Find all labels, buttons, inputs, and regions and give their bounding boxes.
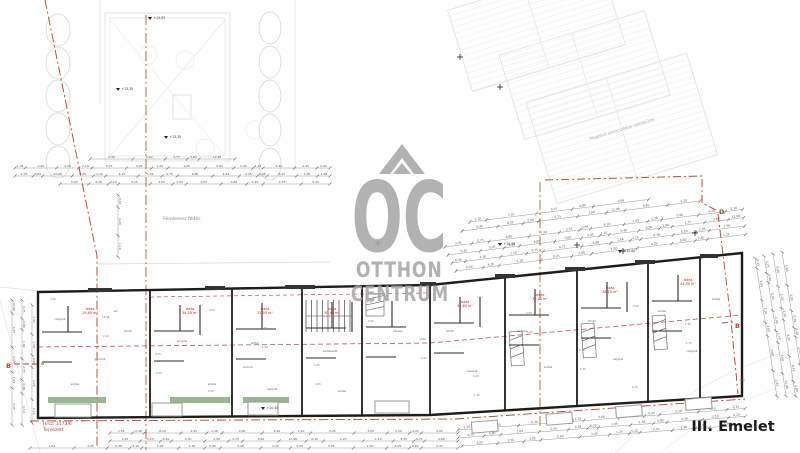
dimension-number: 1,10	[118, 243, 122, 250]
dimension-number: 4,05	[651, 241, 658, 246]
elevation-value: +10,45	[267, 406, 279, 410]
dimension-number: 3,35	[508, 212, 515, 217]
dimension-number: 6,10	[681, 229, 688, 234]
interior-dimension: 0,30	[580, 367, 586, 371]
dimension-number: 1,50	[395, 429, 402, 433]
dimension-number: 0,45	[118, 198, 122, 205]
architectural-floorplan-screenshot: Meglévő szomszédos lakóépület 1,380,904,…	[0, 0, 800, 453]
dimension-number: 1,10	[12, 377, 16, 384]
balcony-slab	[152, 403, 182, 416]
interior-dimension: 2,90	[633, 304, 639, 308]
dimension-number: 2,90	[527, 218, 534, 223]
dimension-number: 1,75	[574, 417, 581, 421]
interior-dimension: 3,05	[209, 308, 215, 312]
garden-vegetation	[46, 12, 281, 180]
dimension-number: 0,30	[302, 164, 309, 168]
dimension-number: 1,95	[632, 218, 639, 223]
dimension-number: 2,20	[12, 356, 16, 363]
dimension-number: 2,90	[213, 437, 220, 441]
dimension-number: 3,35	[732, 405, 739, 409]
dimension-number: 1,10	[510, 251, 517, 256]
dimension-number: 0,60	[216, 164, 223, 168]
dimension-number: 0,60	[412, 444, 419, 448]
dimension-number: 1,64	[617, 198, 624, 203]
dimension-number: 2,90	[662, 223, 669, 228]
dimension-number: 0,60	[436, 429, 443, 433]
property-boundary-left	[45, 0, 97, 447]
dimension-number: 1,25	[616, 430, 623, 434]
red-axis-through-building	[38, 315, 742, 347]
elevation-value: +13,35	[170, 135, 182, 139]
dimension-number: 12,98	[12, 302, 16, 311]
dimension-number: 2,45	[252, 180, 259, 184]
dimension-number: 1,64	[22, 341, 26, 348]
unit-area-label: 38,15 m²	[602, 290, 618, 294]
interior-dimension: 1,64	[473, 374, 479, 378]
dimension-number: 1,75	[21, 172, 28, 176]
dimension-number: 3,05	[328, 444, 335, 448]
interior-dimension: 3,35	[314, 363, 320, 367]
watermark-centrum: CENTRUM	[351, 282, 449, 306]
dimension-number: 0,75	[551, 207, 558, 212]
shaft	[509, 331, 524, 366]
interior-dimension: 4,26	[50, 297, 56, 301]
neighbor-buildings: Meglévő szomszédos lakóépület	[448, 0, 718, 218]
dimension-number: 1,25	[464, 425, 471, 429]
dimension-number: 0,45	[12, 327, 16, 334]
interior-dimension: 0,60	[368, 319, 374, 323]
boundary-right	[718, 214, 738, 394]
dimension-number: 0,30	[507, 220, 514, 225]
dimension-number: 4,05	[183, 164, 190, 168]
dimension-number: 1,25	[279, 180, 286, 184]
dimension-number: 1,10	[119, 172, 126, 176]
dimension-number: 1,64	[540, 230, 547, 235]
dimension-number: 3,60	[257, 437, 264, 441]
dimension-number: 2,10	[32, 408, 36, 415]
dimension-number: 3,35	[531, 248, 538, 253]
dimension-number: 2,45	[122, 437, 129, 441]
dimension-number: 4,26	[274, 429, 281, 433]
dimension-number: 4,05	[395, 444, 402, 448]
interior-dimension: 0,45	[155, 352, 161, 356]
dimension-number: 1,25	[601, 231, 608, 236]
dimension-number: 2,55	[632, 235, 639, 240]
interior-dimension: 4,05	[315, 382, 321, 386]
interior-dimension: 0,38	[579, 348, 585, 352]
interior-dimension: 2,55	[526, 311, 532, 315]
dimension-number: 1,64	[49, 444, 56, 448]
dimension-number: 5,40	[476, 224, 483, 229]
survey-cross	[457, 54, 463, 60]
dimension-number: 2,55	[245, 172, 252, 176]
dimension-number: 4,05	[200, 180, 207, 184]
dimension-number: 0,38	[135, 429, 142, 433]
dimension-number: 1,38	[723, 224, 730, 229]
dimension-number: 2,45	[240, 164, 247, 168]
dimension-chain: 2,550,386,101,951,380,904,262,100,253,05…	[108, 429, 459, 435]
dimension-number: 0,38	[653, 233, 660, 238]
dimension-number: 0,38	[581, 225, 588, 230]
vegetation-faint	[196, 139, 214, 157]
room-label: nappali	[267, 387, 278, 391]
dimension-number: 5,40	[631, 429, 638, 433]
vegetation	[259, 46, 281, 78]
dimension-number: 3,35	[455, 241, 462, 246]
dimension-number: 3,05	[136, 164, 143, 168]
dimension-number: 2,20	[96, 172, 103, 176]
interior-dimension: 12,98	[102, 315, 110, 319]
elevation-value: +14,05	[154, 16, 166, 20]
room-label: közlekedő	[323, 349, 338, 353]
dimension-number: 0,90	[209, 444, 216, 448]
section-marker-b-left: B	[6, 362, 11, 370]
shaft	[652, 315, 667, 350]
dimension-number: 6,10	[590, 423, 597, 427]
vegetation	[259, 114, 281, 146]
dimension-number: 2,10	[298, 429, 305, 433]
elevation-marker: +13,35	[164, 135, 181, 139]
dimension-number: 2,55	[550, 426, 557, 430]
dimension-number: 5,40	[620, 228, 627, 233]
vegetation	[46, 113, 70, 145]
dimension-number: 0,30	[108, 155, 115, 159]
dimension-number: 0,45	[643, 203, 650, 208]
interior-dimension: 1,10	[261, 326, 267, 330]
dimension-number: 0,60	[680, 238, 687, 243]
interior-dimension: 2,10	[103, 334, 109, 338]
dimension-number: 1,64	[223, 172, 230, 176]
dimension-number: 0,25	[131, 180, 138, 184]
dimension-number: 4,05	[529, 436, 536, 440]
elevation-value: +13,35	[122, 87, 134, 91]
dimension-number: 1,75	[684, 220, 691, 225]
room-label: nappali	[467, 369, 478, 373]
dimension-number: 3,60	[35, 172, 42, 176]
dimension-number: 1,38	[32, 341, 36, 348]
dimension-chain: 1,103,350,754,801,64	[468, 195, 650, 224]
unit-area-label: 31,05 m²	[257, 311, 273, 315]
dimension-number: 4,26	[681, 416, 688, 420]
room-label: nappali	[55, 317, 66, 321]
interior-dimension: 0,25	[156, 371, 162, 375]
dimension-number: 0,25	[553, 254, 560, 259]
dimension-number: 6,10	[159, 429, 166, 433]
dimension-number: 0,45	[455, 258, 462, 263]
dimension-number: 2,10	[272, 444, 279, 448]
vegetation-faint	[139, 46, 157, 64]
staircase	[306, 300, 352, 332]
canopy-label: Fémlemez fedés	[163, 215, 201, 222]
dimension-number: 4,80	[579, 203, 586, 208]
dimension-number: 2,90	[146, 155, 153, 159]
dimension-number: 6,10	[132, 444, 139, 448]
dimension-number: 3,05	[367, 429, 374, 433]
interior-dimension: 2,45	[421, 356, 427, 360]
dimension-number: 3,60	[190, 155, 197, 159]
dimension-number: 2,45	[436, 444, 443, 448]
dimension-number: 0,25	[733, 413, 740, 417]
dimension-number: 1,50	[367, 444, 374, 448]
dimension-chain: 12,980,452,201,103,35	[10, 298, 16, 426]
dimension-number: 1,25	[723, 232, 730, 237]
room-label: gardrób	[94, 357, 105, 361]
dimension-number: 0,45	[311, 437, 318, 441]
unit-area-label: 34,20 m²	[182, 311, 198, 315]
dimension-number: 4,05	[533, 239, 540, 244]
interior-dimension: 4,80	[420, 337, 426, 341]
dimension-number: 1,50	[611, 246, 618, 251]
dimension-number: 4,80	[22, 321, 26, 328]
dimension-number: 1,38	[651, 216, 658, 221]
lot-number-label-2: Tervezett	[42, 427, 64, 433]
dimension-number: 3,60	[588, 210, 595, 215]
dimension-number: 0,38	[115, 444, 122, 448]
room-label: szoba	[544, 365, 553, 369]
dimension-number: 2,55	[566, 227, 573, 232]
dimension-number: 5,40	[312, 180, 319, 184]
otthon-centrum-watermark: OC OTTHON CENTRUM	[351, 144, 449, 307]
dimension-number: 0,60	[231, 180, 238, 184]
interior-dimension: 1,25	[474, 393, 480, 397]
dimension-number: 5,40	[163, 437, 170, 441]
dimension-number: 0,25	[106, 164, 113, 168]
watermark-otthon: OTTHON	[356, 257, 443, 282]
dimension-chain: 1,380,904,262,100,253,051,504,050,602,45…	[13, 164, 331, 170]
room-label: szoba	[208, 382, 217, 386]
dimension-number: 0,90	[466, 265, 473, 270]
dimension-number: 1,38	[17, 164, 24, 168]
vegetation	[46, 14, 70, 46]
dimension-chain: 1,642,550,386,101,951,380,904,262,100,25…	[28, 444, 459, 450]
unit-area-label: 38,15 m²	[532, 297, 548, 301]
dimension-number: 0,90	[657, 418, 664, 422]
room-label: szoba	[658, 309, 667, 313]
dimension-number: 4,80	[192, 172, 199, 176]
dimension-chain: 0,904,262,100,253,051,504,050,602,451,25…	[58, 180, 331, 186]
vegetation-faint	[246, 121, 264, 139]
dimension-number: 4,80	[592, 240, 599, 245]
interior-dimension: 1,95	[685, 322, 691, 326]
elevation-value: +10,45	[504, 242, 516, 246]
dimension-number: 2,20	[680, 198, 687, 203]
balcony-green	[170, 397, 230, 403]
room-label: szoba	[712, 297, 721, 301]
balcony-green	[48, 397, 106, 403]
dimension-number: 0,75	[22, 306, 26, 313]
dimension-number: 0,90	[37, 164, 44, 168]
dimension-number: 5,40	[276, 164, 283, 168]
dimension-number: 0,25	[329, 429, 336, 433]
dimension-number: 1,25	[147, 437, 154, 441]
dimension-number: 3,05	[578, 251, 585, 256]
dimension-number: 4,26	[487, 262, 494, 267]
dimension-number: 1,95	[304, 172, 311, 176]
dimension-number: 2,90	[320, 164, 327, 168]
dimension-number: 1,64	[617, 237, 624, 242]
floor-plan-drawing: Meglévő szomszédos lakóépület 1,380,904,…	[0, 0, 800, 453]
dimension-number: 2,55	[22, 366, 26, 373]
dimension-chain: 0,452,201,10	[116, 193, 122, 258]
dimension-number: 0,90	[71, 180, 78, 184]
dimension-number: 4,80	[438, 437, 445, 441]
dimension-number: 1,25	[255, 164, 262, 168]
dimension-number: 2,10	[82, 164, 89, 168]
dimension-number: 0,90	[676, 213, 683, 218]
dimension-number: 2,10	[730, 206, 737, 211]
dimension-number: 0,45	[648, 411, 655, 415]
interior-dimension: 1,75	[686, 341, 692, 345]
survey-cross	[497, 84, 503, 90]
shaft	[581, 323, 596, 358]
dimension-number: 1,50	[176, 180, 183, 184]
dimension-number: 1,38	[211, 429, 218, 433]
dimension-number: 1,95	[190, 429, 197, 433]
dimension-number: 2,10	[110, 180, 117, 184]
lot-number-label: Hrsz: 3173/6	[43, 421, 72, 427]
dimension-number: 0,60	[557, 434, 564, 438]
dimension-chain: 0,452,201,103,350,754,801,642,550,386,10…	[450, 222, 747, 265]
room-label: előtér	[251, 341, 260, 345]
section-marker-b-right: B	[735, 322, 740, 330]
dimension-number: 0,38	[22, 383, 26, 390]
dimension-number: 2,45	[587, 232, 594, 237]
balcony-slab	[375, 401, 409, 413]
interior-dimension: 3,60	[739, 378, 745, 382]
dimension-chain: 2,451,255,400,302,901,753,6012,980,452,2…	[108, 437, 459, 443]
dimension-number: 4,26	[95, 180, 102, 184]
dimension-number: 3,05	[489, 245, 496, 250]
dimension-number: 2,20	[340, 437, 347, 441]
interior-dimension: 6,10	[632, 385, 638, 389]
dimension-number: 3,35	[400, 437, 407, 441]
dimension-number: 1,95	[699, 227, 706, 232]
room-label: konyha	[177, 339, 188, 343]
dimension-number: 12,98	[288, 437, 297, 441]
dimension-number: 1,38	[188, 444, 195, 448]
dimension-number: 1,50	[156, 164, 163, 168]
dimension-number: 0,30	[645, 225, 652, 230]
dimension-number: 2,10	[712, 414, 719, 418]
dimension-number: 1,75	[232, 437, 239, 441]
dimension-number: 0,30	[531, 420, 538, 424]
room-label: terasz	[394, 329, 403, 333]
dimension-number: 2,20	[479, 254, 486, 259]
dimension-number: 0,90	[239, 429, 246, 433]
dimension-chain: 0,754,801,642,550,386,10	[20, 298, 26, 426]
section-marker-d-right: D	[719, 208, 725, 216]
neighbor-building-label: Meglévő szomszédos lakóépület	[589, 117, 655, 142]
dimension-number: 2,45	[591, 432, 598, 436]
dimension-number: 0,75	[166, 172, 173, 176]
dimension-number: 2,20	[118, 218, 122, 225]
dimension-number: 1,75	[173, 155, 180, 159]
elevation-marker: +14,05	[148, 16, 165, 20]
dimension-number: 0,25	[297, 444, 304, 448]
dimension-number: 6,10	[22, 406, 26, 413]
room-label: kamra	[243, 365, 252, 369]
dimension-number: 0,75	[416, 437, 423, 441]
dimension-number: 1,95	[157, 444, 164, 448]
room-label: fürdő	[588, 319, 596, 323]
dimension-number: 4,05	[412, 429, 419, 433]
dimension-number: 1,10	[375, 437, 382, 441]
dimension-chain: 1,753,6012,980,452,201,103,350,754,801,6…	[13, 172, 331, 178]
dimension-number: 3,05	[476, 440, 483, 444]
dimension-number: 0,75	[559, 244, 566, 249]
dimension-number: 3,35	[147, 172, 154, 176]
dimension-number: 0,38	[259, 172, 266, 176]
dimension-number: 2,10	[516, 258, 523, 263]
interior-dimension: 2,20	[208, 389, 214, 393]
dimension-number: 1,95	[32, 316, 36, 323]
room-label: nappali	[687, 349, 698, 353]
dimension-number: 6,10	[278, 172, 285, 176]
dimension-number: 1,38	[639, 420, 646, 424]
vegetation	[259, 12, 281, 44]
dimension-number: 1,10	[474, 216, 481, 221]
dimension-number: 1,95	[611, 422, 618, 426]
dimension-number: 4,26	[237, 444, 244, 448]
room-label: szoba	[71, 382, 80, 386]
dimension-number: 0,75	[477, 238, 484, 243]
dimension-number: 0,38	[575, 425, 582, 429]
dimension-number: 2,20	[675, 409, 682, 413]
dimension-number: 4,80	[505, 234, 512, 239]
dimension-number: 0,25	[460, 248, 467, 253]
dimension-number: 3,05	[158, 180, 165, 184]
dimension-number: 4,26	[64, 164, 71, 168]
dimension-number: 2,55	[118, 429, 125, 433]
dimension-number: 3,60	[598, 415, 605, 419]
room-label: fürdő	[446, 329, 454, 333]
dimension-number: 0,30	[653, 427, 660, 431]
room-label: szoba	[338, 389, 347, 393]
room-label: wc	[114, 309, 118, 313]
dimension-number: 6,10	[603, 222, 610, 227]
dimension-number: 12,98	[53, 172, 62, 176]
room-label: konyha	[517, 329, 528, 333]
dimension-number: 4,26	[32, 380, 36, 387]
dimension-number: 1,75	[554, 214, 561, 219]
floor-title: III. Emelet	[691, 419, 774, 435]
room-label: fürdő	[124, 329, 132, 333]
interior-dimension: 1,50	[262, 345, 268, 349]
unit-area-label: 42,60 m²	[457, 304, 473, 308]
dimension-number: 2,55	[87, 444, 94, 448]
dimension-number: 12,98	[213, 155, 222, 159]
elevation-marker: +13,35	[116, 87, 133, 91]
dimension-number: 2,45	[697, 235, 704, 240]
unit-area-label: 29,85 m²	[82, 311, 98, 315]
dimension-number: 0,60	[564, 235, 571, 240]
dimension-number: 0,30	[185, 437, 192, 441]
dimension-number: 1,50	[507, 438, 514, 442]
balcony-slab	[55, 404, 91, 417]
dimension-number: 1,38	[320, 172, 327, 176]
dimension-number: 3,35	[12, 403, 16, 410]
elevation-marker: +10,45	[498, 242, 515, 246]
interior-dimension: 5,40	[527, 330, 533, 334]
unit-area-label: 44,90 m²	[680, 282, 696, 286]
vegetation	[259, 80, 281, 112]
room-label: nappali	[613, 357, 624, 361]
dimension-number: 1,64	[516, 429, 523, 433]
dimension-number: 2,90	[680, 425, 687, 429]
unit-area-label: 30,45 m²	[324, 311, 340, 315]
